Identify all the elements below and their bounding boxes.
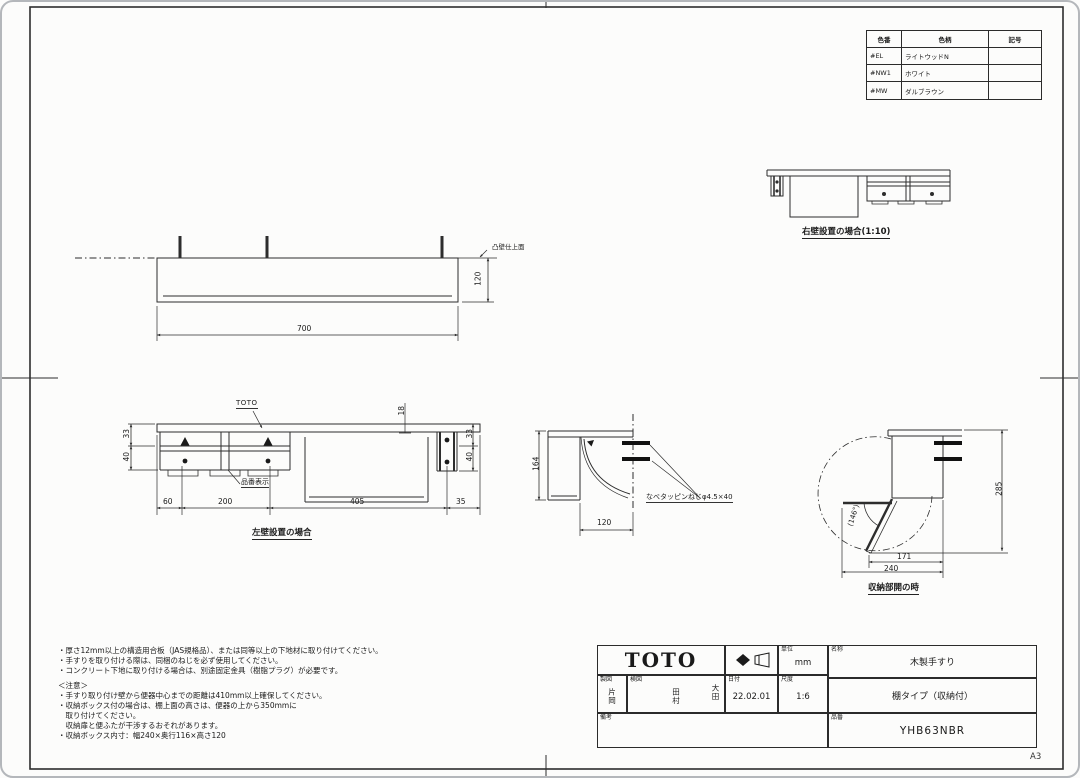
color-table-header-symbol: 記号 [989,31,1041,48]
date-value: 22.02.01 [726,676,777,712]
dim-side-height: 164 [532,457,540,471]
caution-line: 収納扉と便ふたが干渉するおそれがあります。 [58,721,568,731]
part-number-cell: 品番 YHB63NBR [828,713,1037,748]
third-angle-projection-icon [732,651,772,669]
engineering-drawing-sheet: 色番 色柄 記号 #EL ライトウッドN #NW1 ホワイト #MW ダルブラウ… [0,0,1080,778]
dim-front-shelf-thickness: 18 [398,406,406,416]
checker-name-2: 大田 [710,684,721,701]
label-wall-finish: 凸壁仕上面 [492,244,525,251]
product-type: 棚タイプ（収納付） [829,679,1036,712]
label-brand-on-shelf: TOTO [236,400,258,409]
color-table-header-code: 色番 [867,31,902,48]
name-cell: 名称 木製手すり [828,645,1037,678]
color-name: ダルブラウン [902,82,989,99]
sheet-size-label: A3 [1030,753,1041,762]
dim-front-left-bottom: 40 [123,452,131,462]
part-number-value: YHB63NBR [829,714,1036,747]
plan-view-lines [75,236,497,341]
unit-cell: 単位 mm [778,645,828,675]
color-name: ライトウッドN [902,48,989,65]
color-name: ホワイト [902,65,989,82]
caption-right-wall-view: 右壁設置の場合(1:10) [802,228,890,239]
remarks-cell: 備考 [597,713,828,748]
brand-logo: TOTO [598,646,724,674]
dim-open-height: 285 [995,482,1003,496]
color-symbol [989,82,1041,99]
note-line: ・厚さ12mm以上の構造用合板（JAS規格品）、または同等以上の下地材に取り付け… [58,646,568,656]
label-part-number-display: 品番表示 [241,479,269,488]
right-wall-view-lines [767,170,950,217]
dim-front-right-top: 33 [466,429,474,439]
dim-front-200: 200 [218,498,232,506]
caution-title: ＜注意＞ [58,681,568,691]
dim-front-60: 60 [163,498,173,506]
scale-cell: 尺度 1:6 [778,675,828,713]
projection-symbol-cell [725,645,778,675]
caution-line: 取り付けてください。 [58,711,568,721]
title-block: TOTO 単位 mm 名称 木製手すり 製図 片岡 検図 田村 [597,645,1037,748]
drafter-name: 片岡 [598,676,626,712]
color-code: #EL [867,48,902,65]
color-code: #NW1 [867,65,902,82]
color-table: 色番 色柄 記号 #EL ライトウッドN #NW1 ホワイト #MW ダルブラウ… [866,30,1042,100]
note-line: ・手すりを取り付ける際は、同梱のねじを必ず使用してください。 [58,656,568,666]
caution-line: ・手すり取り付け壁から便器中心までの距離は410mm以上確保してください。 [58,691,568,701]
dim-front-405: 405 [350,498,364,506]
color-code: #MW [867,82,902,99]
note-line: ・コンクリート下地に取り付ける場合は、別途固定金具（樹脂プラグ）が必要です。 [58,666,568,676]
installation-notes: ・厚さ12mm以上の構造用合板（JAS規格品）、または同等以上の下地材に取り付け… [58,646,568,741]
caption-front-view: 左壁設置の場合 [252,529,312,540]
color-symbol [989,65,1041,82]
checker-cell: 検図 田村 大田 [627,675,725,713]
front-view-lines [128,403,480,515]
dim-open-171: 171 [897,553,911,561]
type-cell: 棚タイプ（収納付） [828,678,1037,713]
caption-open-view: 収納部開の時 [868,584,919,595]
dim-front-35: 35 [456,498,466,506]
dim-front-left-top: 33 [123,429,131,439]
dim-front-right-bottom: 40 [466,452,474,462]
product-name: 木製手すり [829,646,1036,677]
remarks-label: 備考 [600,715,612,721]
date-cell: 日付 22.02.01 [725,675,778,713]
label-screw-note: なべタッピンねじφ4.5×40 [646,494,733,503]
dim-plan-width: 700 [297,325,311,333]
dim-side-depth: 120 [597,519,611,527]
scale-value: 1:6 [779,676,827,712]
side-view-lines [535,414,700,536]
dim-open-240: 240 [884,565,898,573]
caution-line: ・収納ボックス付の場合は、棚上面の高さは、便器の上から350mmに [58,701,568,711]
dim-plan-depth: 120 [474,272,482,286]
open-view-lines [818,430,1008,578]
unit-value: mm [779,646,827,674]
color-table-header-name: 色柄 [902,31,989,48]
color-symbol [989,48,1041,65]
caution-line: ・収納ボックス内寸：幅240×奥行116×高さ120 [58,731,568,741]
title-block-brand-cell: TOTO [597,645,725,675]
drafter-cell: 製図 片岡 [597,675,627,713]
